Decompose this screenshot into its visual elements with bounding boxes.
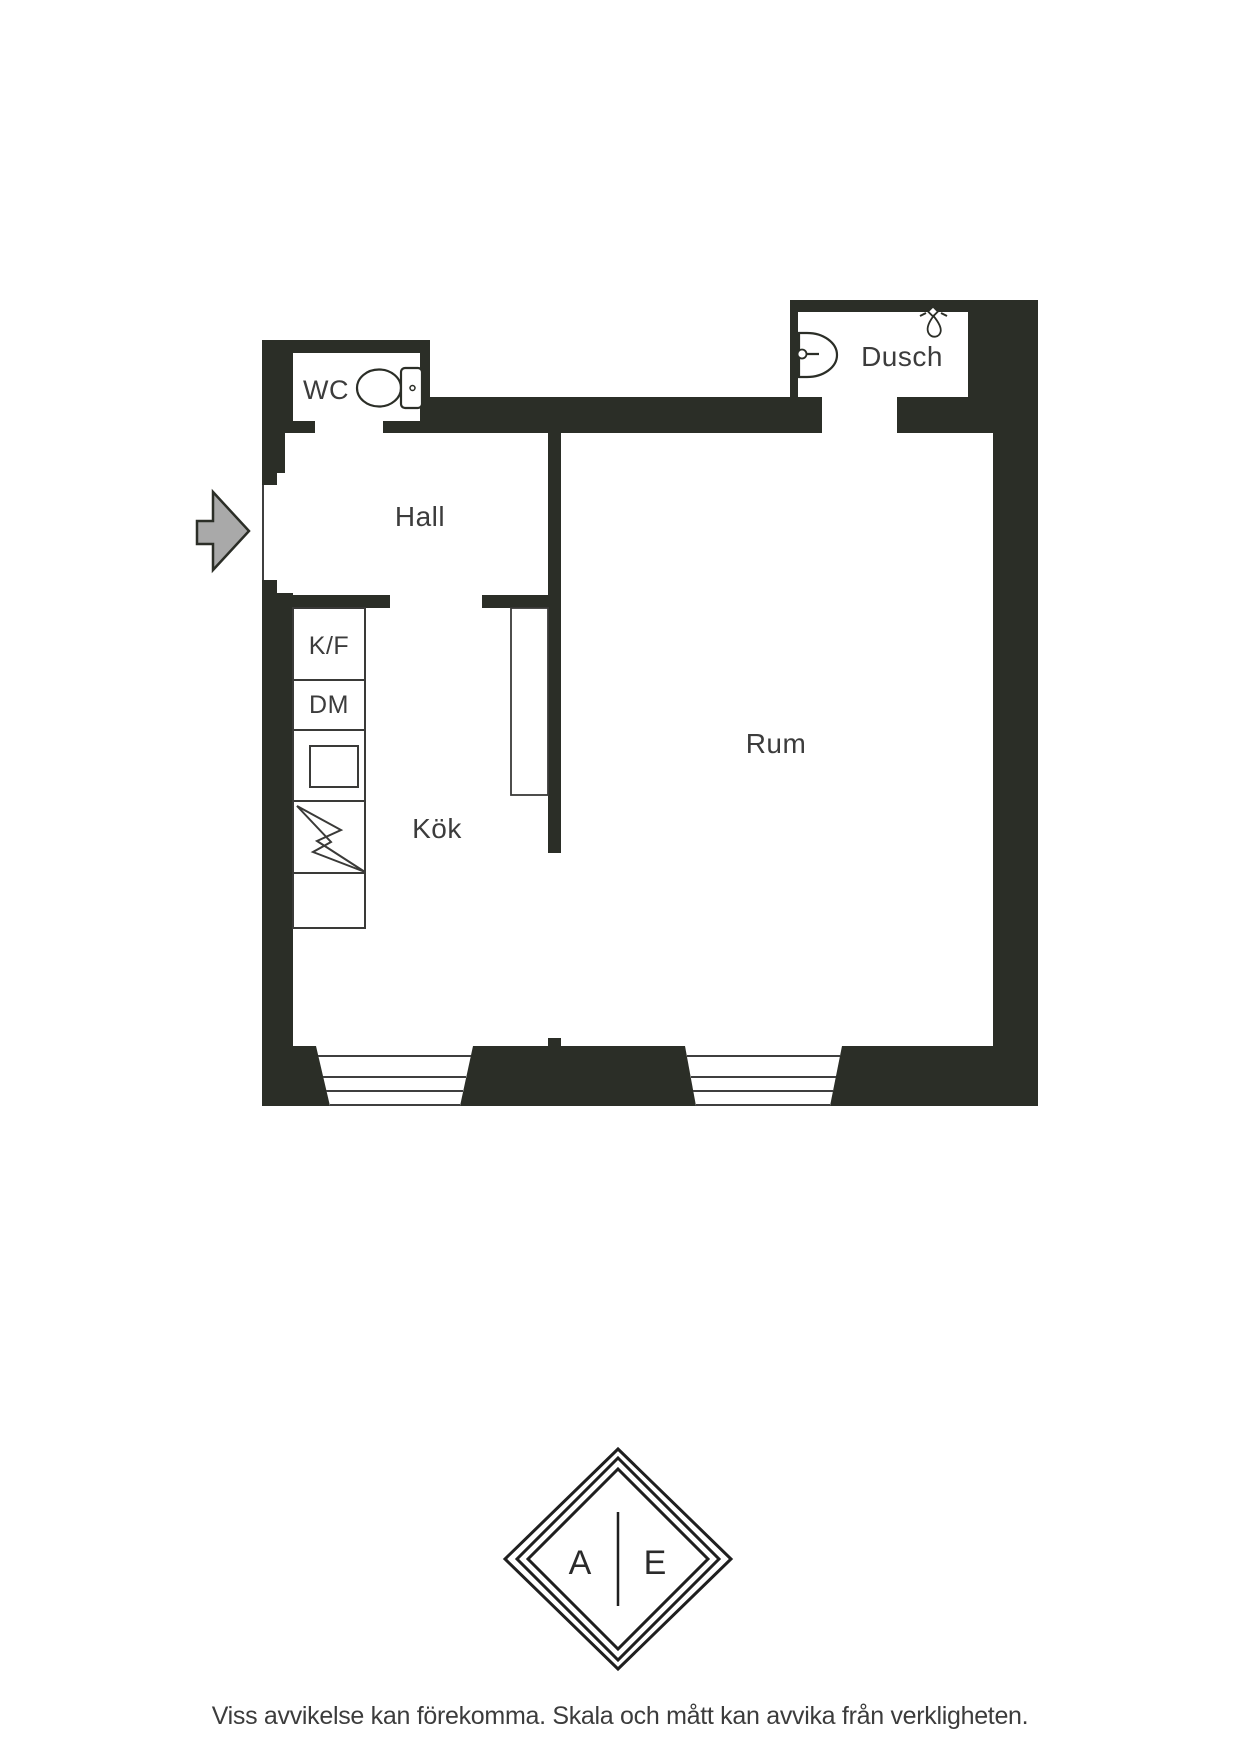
toilet-icon (357, 368, 422, 408)
toilet-flush-button (410, 386, 415, 391)
room-label-hall: Hall (395, 501, 445, 532)
wall-segment (430, 397, 822, 433)
wall-segment (262, 595, 390, 608)
room-label-kok: Kök (412, 813, 462, 844)
sink-tap (798, 350, 807, 359)
logo-letter-e: E (644, 1544, 667, 1582)
wall-segment (262, 473, 277, 485)
hob-square (310, 746, 358, 787)
disclaimer-text: Viss avvikelse kan förekomma. Skala och … (0, 1702, 1240, 1731)
closet-outline (511, 608, 548, 795)
window-room (685, 1046, 842, 1106)
entrance-arrow-icon (197, 492, 249, 570)
wall-segment (262, 433, 285, 473)
wall-segment (993, 433, 1038, 1106)
room-label-rum: Rum (746, 728, 807, 759)
wall-segment (383, 421, 430, 433)
wall-segment (293, 421, 315, 433)
sink-icon (798, 333, 838, 377)
shower-spray-line (941, 313, 947, 316)
brand-logo: A E (505, 1449, 731, 1669)
room-label-dusch: Dusch (861, 341, 943, 372)
shower-spray-line (920, 313, 926, 316)
wall-segment (968, 300, 1038, 433)
counter-box (293, 873, 365, 928)
room-label-wc: WC (303, 375, 349, 405)
unit-label-dishwasher: DM (309, 691, 349, 719)
shower-drop (928, 316, 941, 337)
toilet-bowl (357, 370, 401, 407)
floor-plan: WC Hall Dusch K/F DM Kök Rum A E (0, 0, 1240, 1754)
wall-segment (548, 433, 561, 853)
wall-segment (262, 340, 293, 433)
wall-segment (262, 580, 277, 593)
unit-label-fridge-freezer: K/F (309, 632, 349, 660)
wall-segment (262, 593, 293, 1106)
walls (262, 300, 1038, 1106)
wall-segment (548, 1038, 561, 1046)
window-kitchen (316, 1046, 473, 1106)
wall-segment (482, 595, 548, 608)
logo-letter-a: A (569, 1544, 592, 1582)
